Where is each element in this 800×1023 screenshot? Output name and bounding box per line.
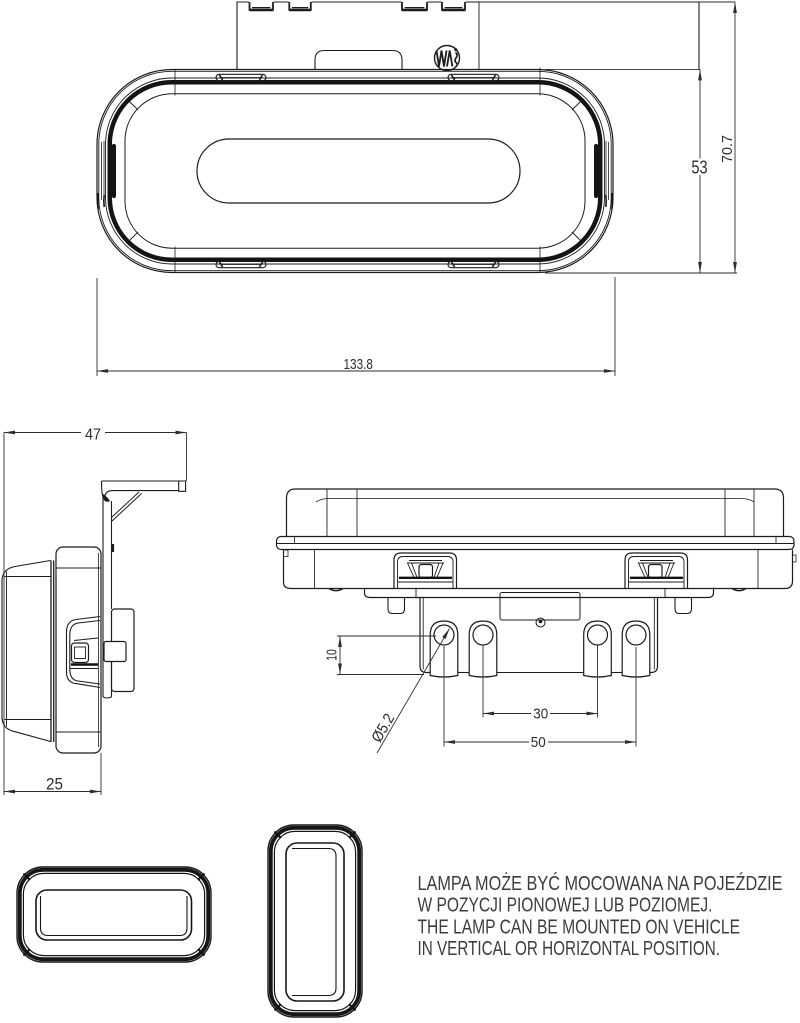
svg-text:Ø5.2: Ø5.2: [369, 711, 399, 745]
svg-text:10: 10: [323, 649, 340, 661]
svg-text:50: 50: [531, 735, 546, 751]
svg-text:53: 53: [691, 158, 707, 178]
svg-text:LAMPA MOŻE BYĆ MOCOWANA NA POJ: LAMPA MOŻE BYĆ MOCOWANA NA POJEŹDZIE: [418, 872, 783, 895]
svg-text:W POZYCJI PIONOWEJ LUB POZIOME: W POZYCJI PIONOWEJ LUB POZIOMEJ.: [418, 894, 713, 917]
svg-text:IN VERTICAL OR HORIZONTAL POSI: IN VERTICAL OR HORIZONTAL POSITION.: [418, 937, 721, 960]
svg-text:70.7: 70.7: [720, 135, 736, 163]
svg-text:30: 30: [533, 707, 548, 723]
svg-text:133.8: 133.8: [344, 357, 373, 373]
svg-text:25: 25: [46, 776, 63, 794]
svg-text:47: 47: [85, 426, 101, 443]
svg-text:THE LAMP CAN BE MOUNTED ON VEH: THE LAMP CAN BE MOUNTED ON VEHICLE: [418, 915, 741, 938]
